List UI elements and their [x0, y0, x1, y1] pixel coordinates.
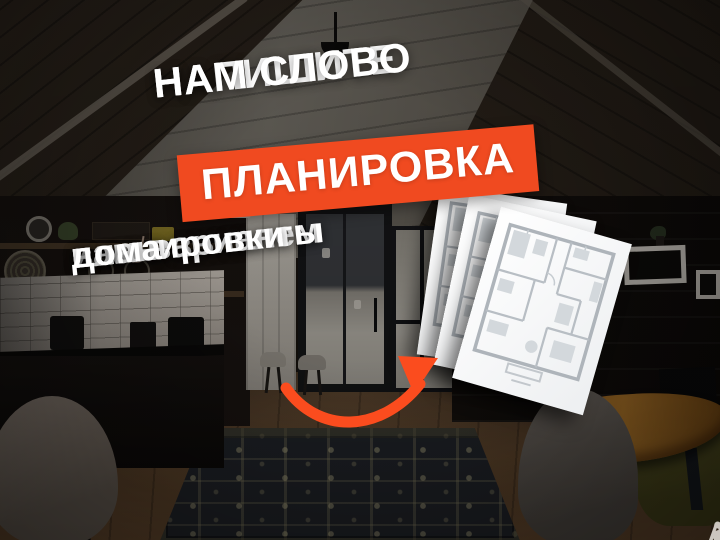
watermark-brand: Avito — [708, 517, 720, 540]
ad-image: НАПИШИТЕ НАМ СЛОВО ПЛАНИРОВКА и мы вышле… — [0, 0, 720, 540]
subtext-line4: дома — [69, 229, 163, 275]
curved-arrow-icon — [266, 346, 456, 446]
